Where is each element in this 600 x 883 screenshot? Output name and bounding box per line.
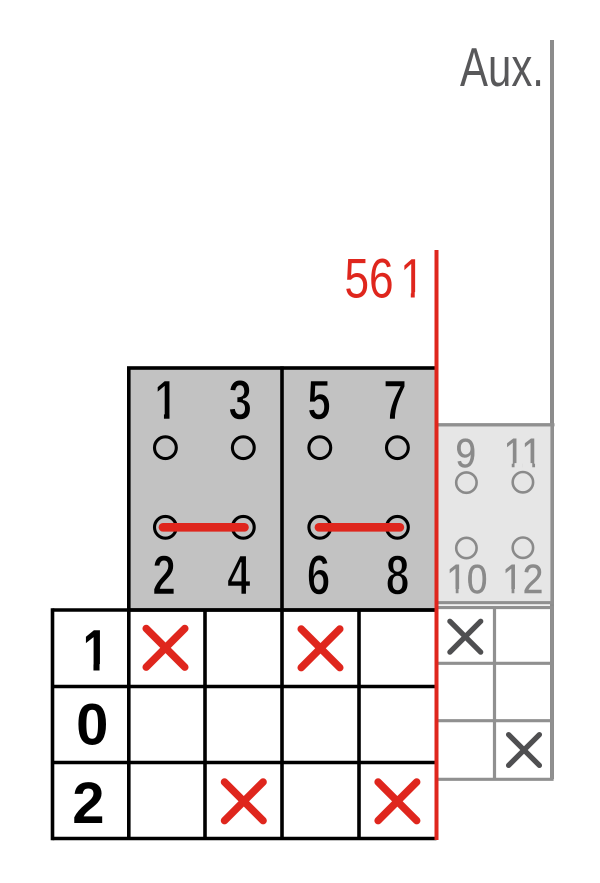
svg-text:2: 2 (152, 543, 176, 607)
svg-text:1: 1 (83, 619, 109, 684)
svg-text:9: 9 (456, 431, 477, 476)
svg-text:0: 0 (76, 693, 108, 758)
svg-text:1: 1 (400, 248, 425, 310)
svg-text:7: 7 (383, 369, 407, 433)
svg-text:Aux.: Aux. (460, 38, 544, 99)
svg-text:10: 10 (446, 557, 487, 602)
svg-text:5: 5 (307, 369, 331, 433)
svg-text:8: 8 (386, 543, 410, 607)
svg-text:12: 12 (502, 557, 543, 602)
svg-text:11: 11 (504, 431, 542, 476)
svg-text:6: 6 (307, 543, 331, 607)
svg-text:3: 3 (228, 369, 252, 433)
svg-text:2: 2 (72, 771, 104, 836)
svg-text:4: 4 (227, 543, 251, 607)
svg-text:1: 1 (154, 369, 178, 433)
svg-text:56: 56 (345, 248, 394, 310)
